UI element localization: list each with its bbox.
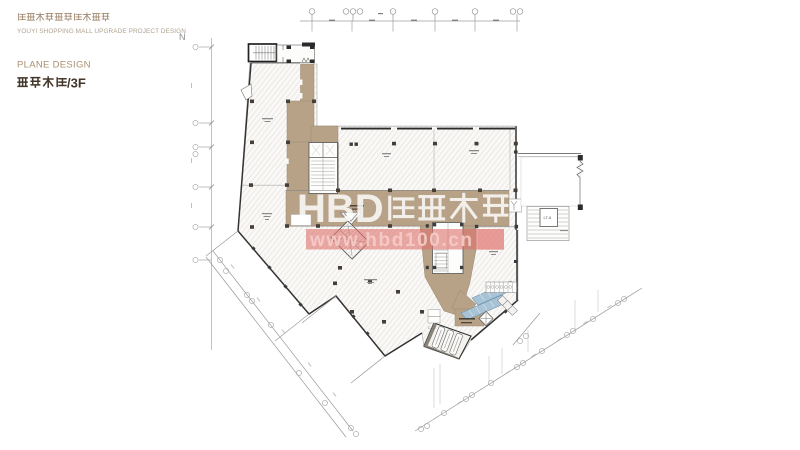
- svg-text:YOUYI SHOPPING MALL UPGRADE PR: YOUYI SHOPPING MALL UPGRADE PROJECT DESI…: [17, 28, 186, 35]
- svg-text:HBD: HBD: [297, 187, 384, 231]
- svg-text:PLANE DESIGN: PLANE DESIGN: [17, 60, 91, 71]
- svg-text:/3F: /3F: [67, 76, 86, 91]
- svg-text:N: N: [179, 32, 186, 42]
- svg-text:LT-6: LT-6: [544, 215, 552, 220]
- svg-text:C-16: C-16: [428, 326, 435, 330]
- svg-text:www.hbd100.cn: www.hbd100.cn: [309, 230, 474, 251]
